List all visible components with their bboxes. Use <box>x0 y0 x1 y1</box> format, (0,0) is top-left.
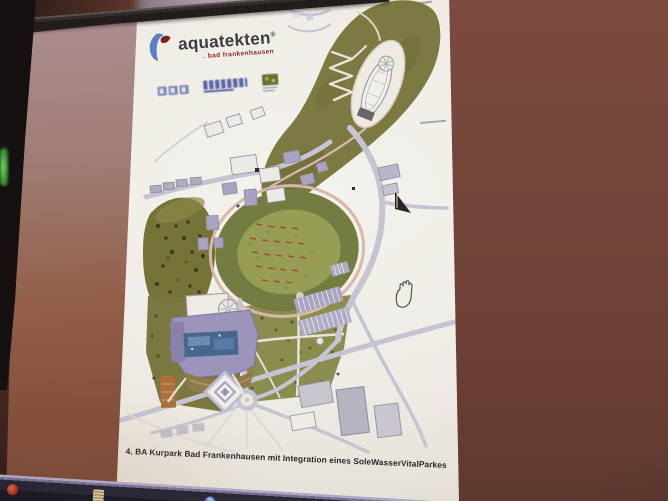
blue-globe-icon <box>204 496 216 501</box>
hand-symbol <box>396 281 412 307</box>
swimming-pool <box>183 331 238 358</box>
green-square-logo <box>262 74 279 92</box>
red-round-icon <box>7 484 19 496</box>
top-road-buildings <box>292 11 314 21</box>
aquatekten-swoosh-icon <box>146 28 174 66</box>
notes-icon <box>93 489 105 501</box>
orange-parking <box>160 375 176 408</box>
green-exit-light <box>0 148 8 186</box>
blue-letter-tiles-logo <box>157 85 189 96</box>
photo-of-projection: aquatekten® . bad frankenhausen 4. BA Ku… <box>0 0 668 501</box>
dark-sail-marker <box>395 192 411 213</box>
registered-mark-icon: ® <box>270 31 276 38</box>
wall-shading-right <box>440 0 668 501</box>
blue-wordmark-logo <box>203 78 248 93</box>
brand-text: aquatekten® . bad frankenhausen <box>177 29 277 62</box>
